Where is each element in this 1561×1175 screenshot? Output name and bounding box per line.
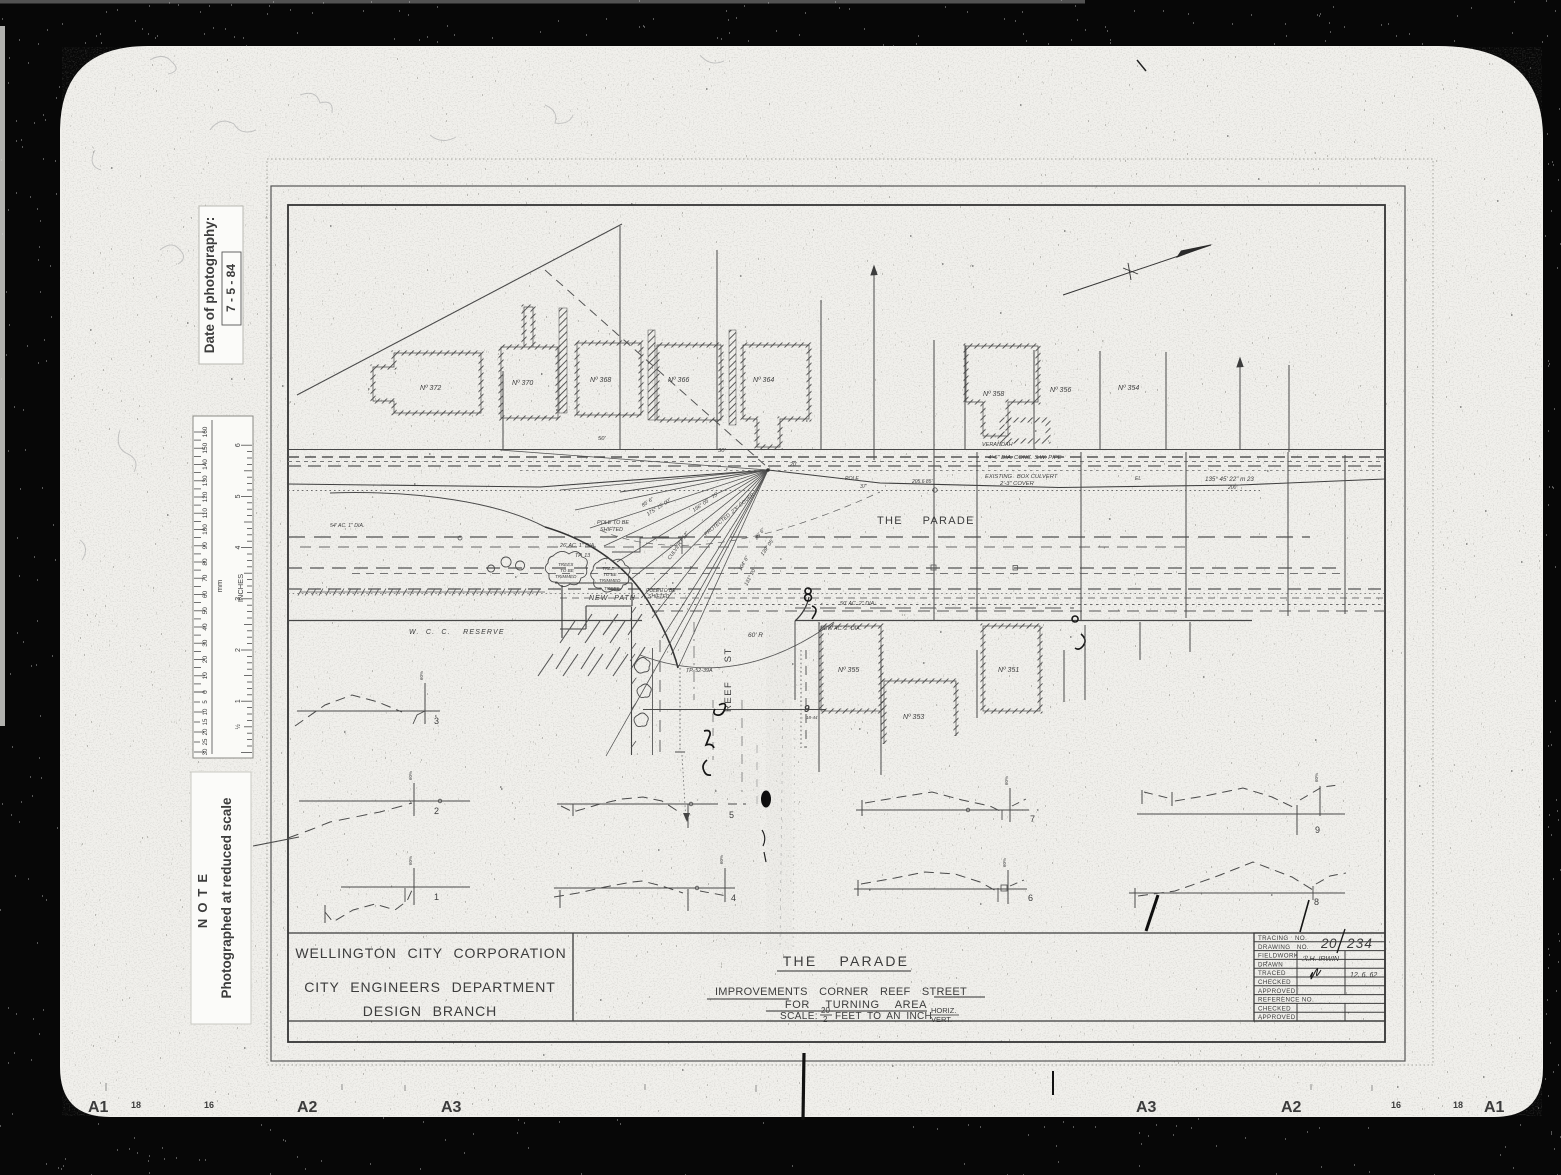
svg-text:DESIGN BRANCH: DESIGN BRANCH	[363, 1003, 497, 1019]
svg-text:2: 2	[235, 648, 242, 652]
svg-text:18: 18	[1453, 1100, 1463, 1110]
svg-text:CITY ENGINEERS DEPARTMENT: CITY ENGINEERS DEPARTMENT	[304, 979, 556, 995]
svg-text:POLE: POLE	[845, 476, 859, 482]
svg-text:3: 3	[434, 716, 439, 726]
svg-text:POLE TO BE: POLE TO BE	[597, 520, 629, 526]
svg-text:2: 2	[823, 1015, 828, 1024]
svg-text:5: 5	[235, 494, 242, 498]
svg-text:4'-6" DIA. CONC. S.W. PIPE: 4'-6" DIA. CONC. S.W. PIPE	[988, 455, 1062, 461]
svg-text:54' AC. 1" DIA.: 54' AC. 1" DIA.	[330, 523, 364, 529]
svg-text:TREE: TREE	[602, 566, 615, 571]
svg-text:6: 6	[1028, 893, 1033, 903]
svg-text:200': 200'	[1227, 485, 1238, 491]
svg-text:CHECKED: CHECKED	[1258, 979, 1291, 986]
svg-text:VERANDAH: VERANDAH	[982, 442, 1013, 448]
svg-text:130: 130	[202, 475, 209, 486]
svg-text:Date of photography:: Date of photography:	[202, 217, 217, 354]
svg-text:15: 15	[203, 718, 209, 725]
svg-text:TREES: TREES	[604, 586, 620, 591]
svg-text:A2: A2	[1281, 1099, 1302, 1116]
svg-text:8: 8	[1314, 897, 1319, 907]
svg-text:TRIMMED: TRIMMED	[599, 578, 621, 583]
svg-text:18: 18	[131, 1100, 141, 1110]
svg-text:Photographed at reduced scale: Photographed at reduced scale	[219, 797, 234, 999]
svg-text:TRACED: TRACED	[1258, 970, 1286, 977]
svg-text:70: 70	[202, 574, 209, 582]
svg-text:0: 0	[202, 690, 209, 694]
svg-text:37': 37'	[860, 484, 868, 490]
svg-text:50': 50'	[598, 436, 606, 442]
svg-text:SCALE:: SCALE:	[780, 1011, 818, 1022]
svg-text:10: 10	[202, 672, 209, 680]
svg-text:1: 1	[235, 699, 242, 703]
svg-text:60%: 60%	[1314, 773, 1319, 782]
svg-text:16: 16	[1391, 1100, 1401, 1110]
svg-text:Nº 354: Nº 354	[1118, 385, 1139, 392]
svg-text:2'-3" COVER: 2'-3" COVER	[999, 481, 1035, 487]
svg-text:NEW PATH: NEW PATH	[589, 595, 636, 602]
svg-text:TO BE: TO BE	[603, 572, 618, 577]
svg-text:A2: A2	[297, 1099, 318, 1116]
svg-text:9: 9	[804, 704, 810, 715]
svg-text:100: 100	[202, 524, 209, 535]
svg-text:Nº 372: Nº 372	[420, 385, 441, 392]
svg-text:THE PARADE: THE PARADE	[877, 515, 975, 527]
svg-text:120: 120	[202, 491, 209, 502]
svg-text:TO BE: TO BE	[560, 568, 575, 573]
svg-text:INCHES: INCHES	[236, 574, 245, 602]
svg-text:Nº 356: Nº 356	[1050, 387, 1071, 394]
svg-text:5: 5	[729, 810, 734, 820]
svg-text:1: 1	[434, 892, 439, 902]
svg-text:160: 160	[202, 426, 209, 437]
svg-text:30: 30	[202, 639, 209, 647]
svg-text:60%: 60%	[408, 856, 413, 865]
svg-text:SHIFTED: SHIFTED	[600, 527, 623, 533]
svg-text:Nº 351: Nº 351	[998, 667, 1019, 674]
svg-text:mm: mm	[215, 580, 224, 593]
svg-text:FOR TURNING AREA: FOR TURNING AREA	[785, 999, 927, 1011]
svg-text:20: 20	[1320, 936, 1337, 951]
svg-text:A3: A3	[441, 1099, 462, 1116]
svg-text:20': 20'	[789, 462, 798, 468]
svg-text:18-44: 18-44	[806, 715, 818, 720]
svg-text:25: 25	[203, 738, 209, 745]
svg-text:30': 30'	[718, 448, 726, 454]
svg-text:135° 45' 22" m 23: 135° 45' 22" m 23	[1205, 476, 1254, 483]
svg-text:DRAWN: DRAWN	[1258, 961, 1283, 968]
svg-text:20: 20	[202, 656, 209, 664]
svg-text:IMPROVEMENTS CORNER REEF ST: IMPROVEMENTS CORNER REEF STREET	[715, 986, 967, 998]
svg-text:TRIMMED: TRIMMED	[555, 574, 577, 579]
svg-text:234: 234	[1346, 936, 1373, 951]
svg-text:APPROVED: APPROVED	[1258, 1014, 1296, 1021]
svg-text:110: 110	[202, 508, 209, 519]
svg-text:7 - 5 - 84: 7 - 5 - 84	[224, 264, 238, 312]
svg-text:4: 4	[731, 893, 736, 903]
svg-text:A3: A3	[1136, 1099, 1157, 1116]
svg-text:80: 80	[202, 558, 209, 566]
svg-text:THE PARADE: THE PARADE	[783, 953, 909, 969]
svg-text:205.6 85': 205.6 85'	[911, 479, 933, 485]
svg-text:60%: 60%	[1004, 776, 1009, 785]
svg-text:10: 10	[203, 708, 209, 715]
svg-text:REFERENCE NO.: REFERENCE NO.	[1258, 997, 1314, 1004]
svg-text:9: 9	[1315, 825, 1320, 835]
svg-text:TP. 52-39A: TP. 52-39A	[686, 668, 713, 674]
svg-text:DRAWING NO.: DRAWING NO.	[1258, 944, 1309, 951]
svg-text:WELLINGTON CITY CORPORATION: WELLINGTON CITY CORPORATION	[295, 945, 566, 961]
svg-text:60%: 60%	[419, 671, 424, 680]
svg-text:TREES: TREES	[558, 562, 574, 567]
svg-text:W. C. C. RESERVE: W. C. C. RESERVE	[409, 629, 505, 636]
svg-text:Nº 353: Nº 353	[903, 714, 924, 721]
svg-text:Nº 364: Nº 364	[753, 377, 774, 384]
svg-text:½: ½	[235, 724, 242, 729]
svg-text:150: 150	[202, 442, 209, 453]
svg-text:60%: 60%	[1002, 858, 1007, 867]
svg-text:50' AC. 2" DIA.: 50' AC. 2" DIA.	[840, 601, 876, 607]
svg-text:40: 40	[202, 623, 209, 631]
svg-text:60' R: 60' R	[748, 632, 763, 639]
svg-text:A1: A1	[88, 1099, 109, 1116]
svg-text:20: 20	[203, 728, 209, 735]
svg-text:30: 30	[203, 748, 209, 755]
svg-text:ℛ.H. IRWIN: ℛ.H. IRWIN	[1302, 955, 1340, 963]
svg-text:26' AC. 1" DIA.: 26' AC. 1" DIA.	[559, 543, 596, 549]
svg-text:Nº 358: Nº 358	[983, 391, 1004, 398]
svg-text:SHIFTED: SHIFTED	[648, 594, 670, 600]
svg-text:NOTE: NOTE	[195, 868, 210, 928]
svg-text:EL: EL	[1135, 476, 1141, 482]
svg-text:EXISTING BOX CULVERT: EXISTING BOX CULVERT	[985, 474, 1058, 480]
svg-text:Nº 355: Nº 355	[838, 667, 859, 674]
svg-text:REEF ST: REEF ST	[723, 647, 734, 712]
svg-text:Nº 368: Nº 368	[590, 377, 611, 384]
svg-text:60%: 60%	[408, 771, 413, 780]
svg-text:4: 4	[235, 546, 242, 550]
svg-text:FEET TO AN INCH: FEET TO AN INCH	[835, 1011, 932, 1022]
svg-text:APPROVED: APPROVED	[1258, 988, 1296, 995]
svg-text:50: 50	[202, 607, 209, 615]
svg-text:6: 6	[235, 443, 242, 447]
svg-text:12. 6. 62: 12. 6. 62	[1350, 972, 1377, 979]
svg-text:7: 7	[1030, 814, 1035, 824]
svg-text:60%: 60%	[719, 855, 724, 864]
svg-text:60: 60	[202, 591, 209, 599]
svg-text:140: 140	[202, 459, 209, 470]
svg-text:16: 16	[204, 1100, 214, 1110]
svg-text:Nº 370: Nº 370	[512, 380, 533, 387]
svg-text:CHECKED: CHECKED	[1258, 1005, 1291, 1012]
svg-text:HORIZ.: HORIZ.	[931, 1006, 956, 1015]
svg-text:20: 20	[821, 1006, 830, 1015]
svg-text:2: 2	[434, 806, 439, 816]
svg-text:A1: A1	[1484, 1099, 1505, 1116]
svg-text:Nº 366: Nº 366	[668, 377, 689, 384]
svg-text:FIELDWORK: FIELDWORK	[1258, 953, 1299, 960]
svg-text:TRACING NO.: TRACING NO.	[1258, 935, 1307, 942]
svg-text:TP. 13: TP. 13	[575, 553, 590, 559]
svg-text:90: 90	[202, 542, 209, 550]
svg-text:VERT.: VERT.	[931, 1015, 952, 1024]
